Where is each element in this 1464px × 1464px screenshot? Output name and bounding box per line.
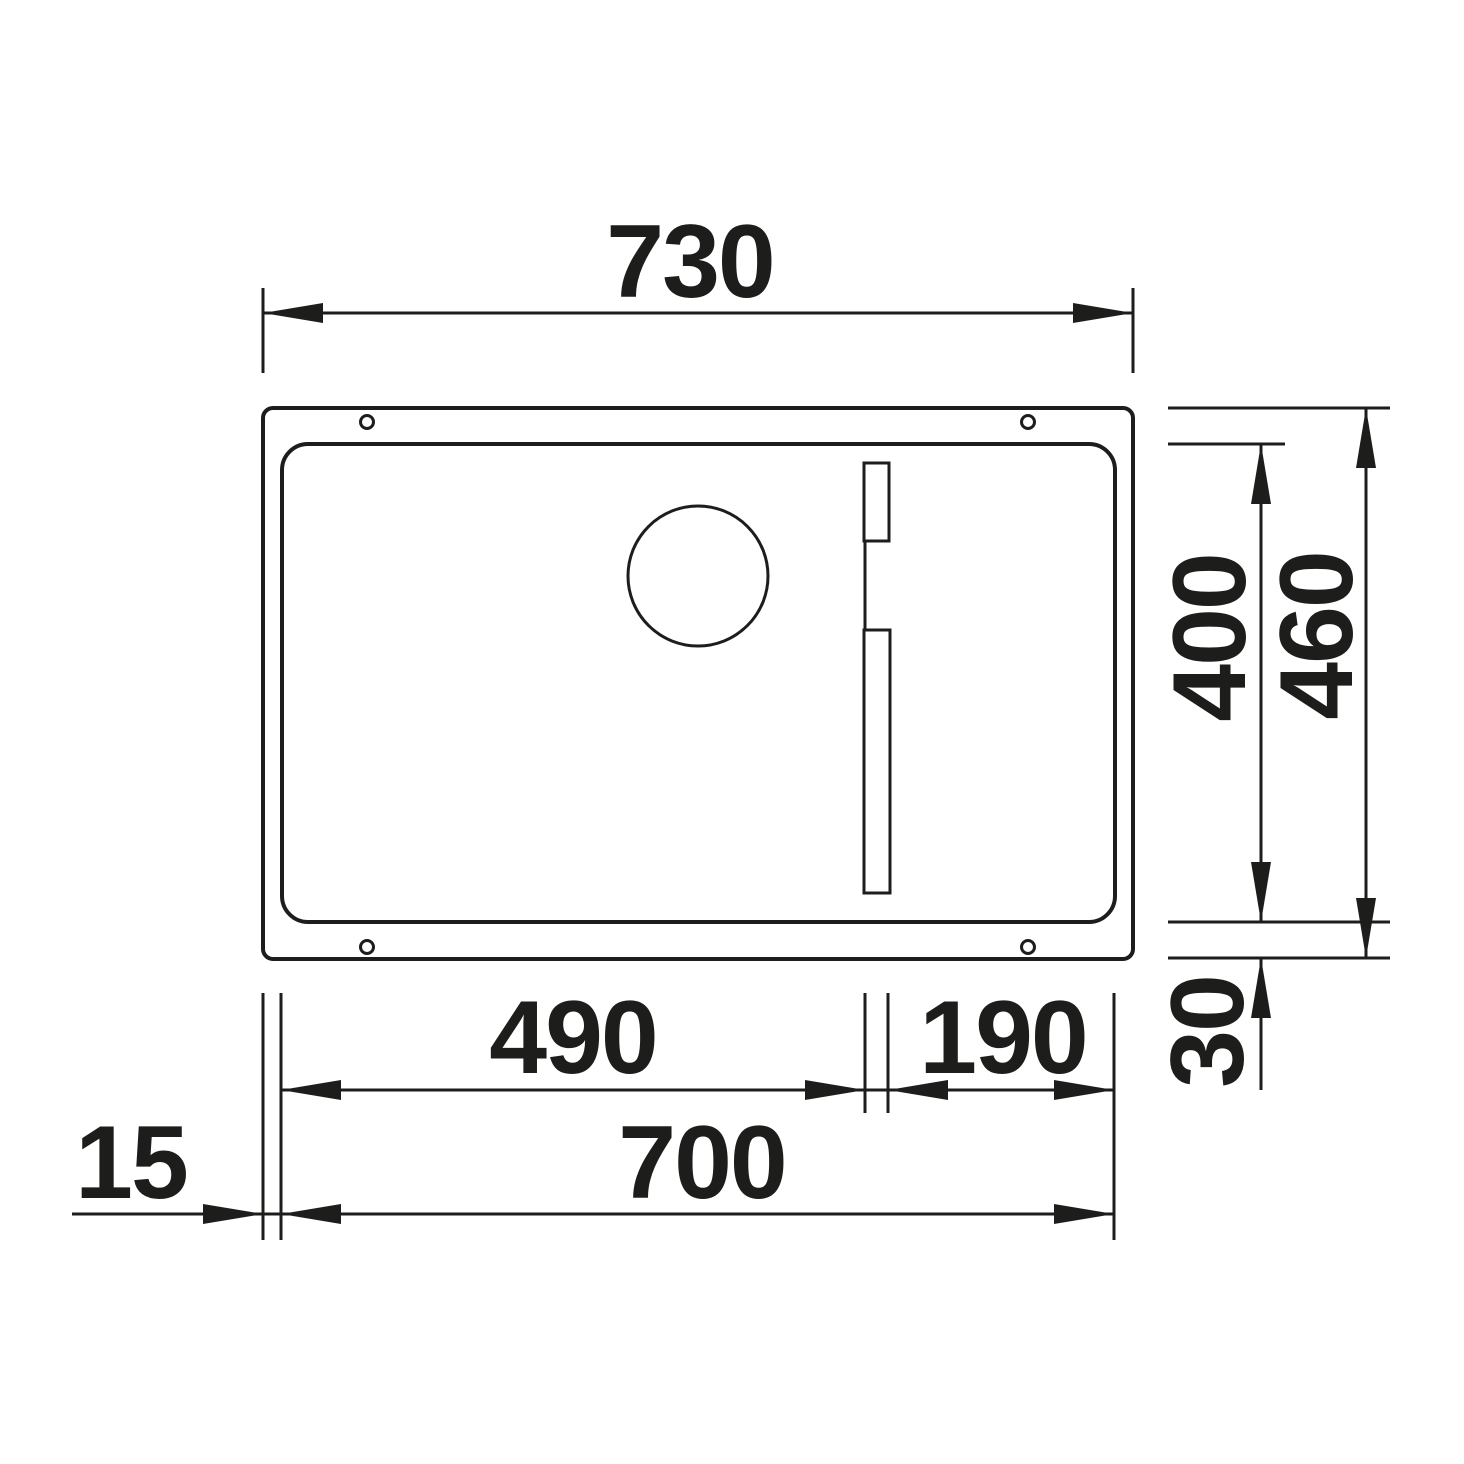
arrow-left-icon: [281, 1080, 341, 1100]
technical-drawing-page: 730 400 460 30 490: [0, 0, 1464, 1464]
dimension-inner-width: 700 15: [72, 1105, 1114, 1224]
sink-outline-group: [263, 408, 1133, 959]
arrow-right-icon: [1073, 303, 1133, 323]
arrow-down-icon: [1356, 898, 1376, 958]
arrow-left-icon: [263, 303, 323, 323]
arrow-right-icon: [203, 1204, 263, 1224]
arrow-up-icon: [1251, 444, 1271, 504]
dimension-label-overall-depth: 460: [1259, 552, 1375, 720]
dimension-label-front-rim-offset: 30: [1150, 976, 1266, 1088]
dimension-label-rail-section: 190: [919, 980, 1087, 1096]
sink-dimension-drawing: 730 400 460 30 490: [0, 0, 1464, 1464]
dimension-label-inner-width: 700: [618, 1105, 786, 1221]
arrow-up-icon: [1356, 408, 1376, 468]
dimension-front-rim-offset: 30: [1150, 958, 1271, 1090]
dimension-label-bowl-width: 490: [489, 980, 657, 1096]
dimension-label-side-offset: 15: [75, 1105, 187, 1221]
sink-inner-bowl-edge: [282, 444, 1115, 922]
arrow-left-icon: [281, 1204, 341, 1224]
arrow-down-icon: [1251, 862, 1271, 922]
arrow-right-icon: [805, 1080, 865, 1100]
arrow-right-icon: [1054, 1204, 1114, 1224]
dimension-overall-width: 730: [263, 204, 1133, 373]
dimension-label-bowl-depth: 400: [1152, 554, 1268, 722]
dimension-label-overall-width: 730: [606, 204, 774, 320]
dimension-rail-section: 190: [888, 980, 1114, 1100]
